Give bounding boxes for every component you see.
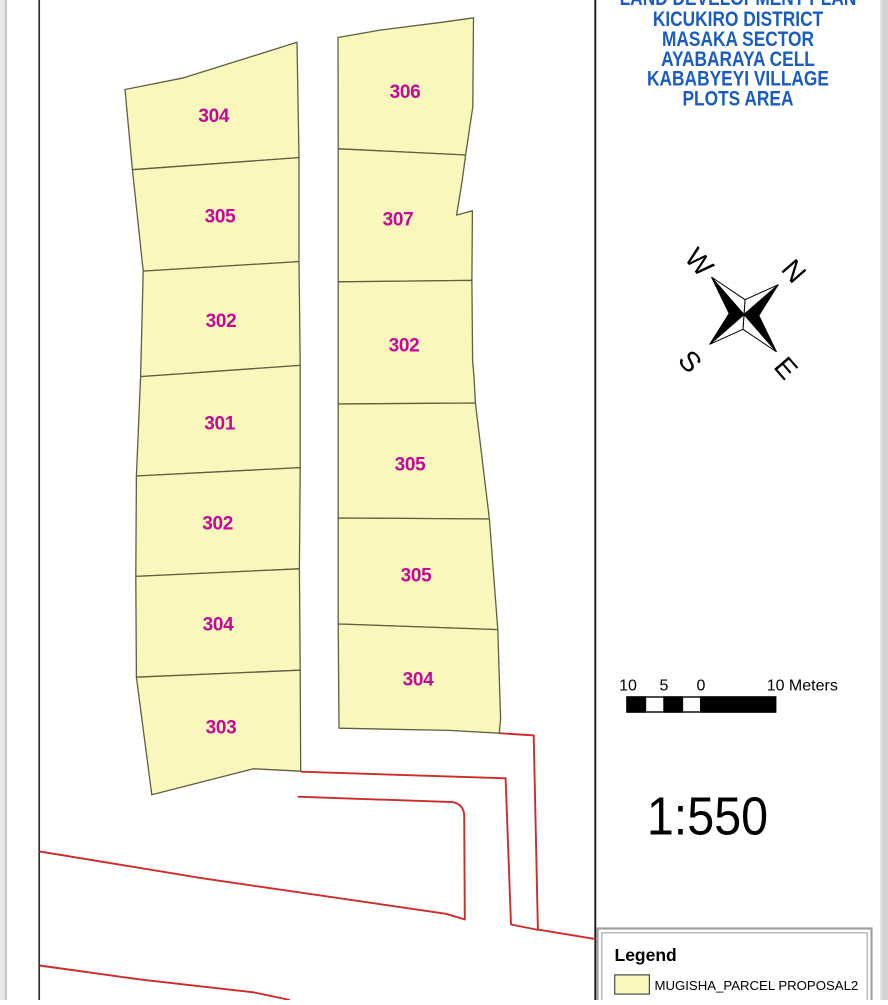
- svg-text:Legend: Legend: [615, 945, 677, 965]
- svg-text:302: 302: [202, 514, 233, 535]
- svg-text:303: 303: [206, 718, 237, 739]
- svg-text:302: 302: [206, 311, 237, 332]
- svg-text:10 Meters: 10 Meters: [767, 678, 838, 695]
- svg-text:0: 0: [697, 678, 706, 695]
- svg-text:306: 306: [390, 82, 421, 103]
- svg-text:1:550: 1:550: [647, 786, 768, 846]
- svg-text:304: 304: [198, 106, 230, 127]
- svg-text:302: 302: [389, 336, 420, 357]
- svg-text:304: 304: [203, 615, 235, 636]
- svg-text:305: 305: [205, 207, 237, 228]
- svg-text:305: 305: [401, 566, 433, 587]
- svg-text:PLOTS AREA: PLOTS AREA: [682, 88, 793, 111]
- svg-text:MUGISHA_PARCEL PROPOSAL2: MUGISHA_PARCEL PROPOSAL2: [655, 978, 859, 993]
- svg-text:5: 5: [660, 678, 669, 695]
- svg-text:305: 305: [395, 455, 427, 476]
- svg-text:304: 304: [403, 670, 435, 691]
- svg-text:10: 10: [619, 678, 637, 695]
- svg-text:301: 301: [204, 414, 236, 435]
- svg-text:307: 307: [383, 210, 414, 231]
